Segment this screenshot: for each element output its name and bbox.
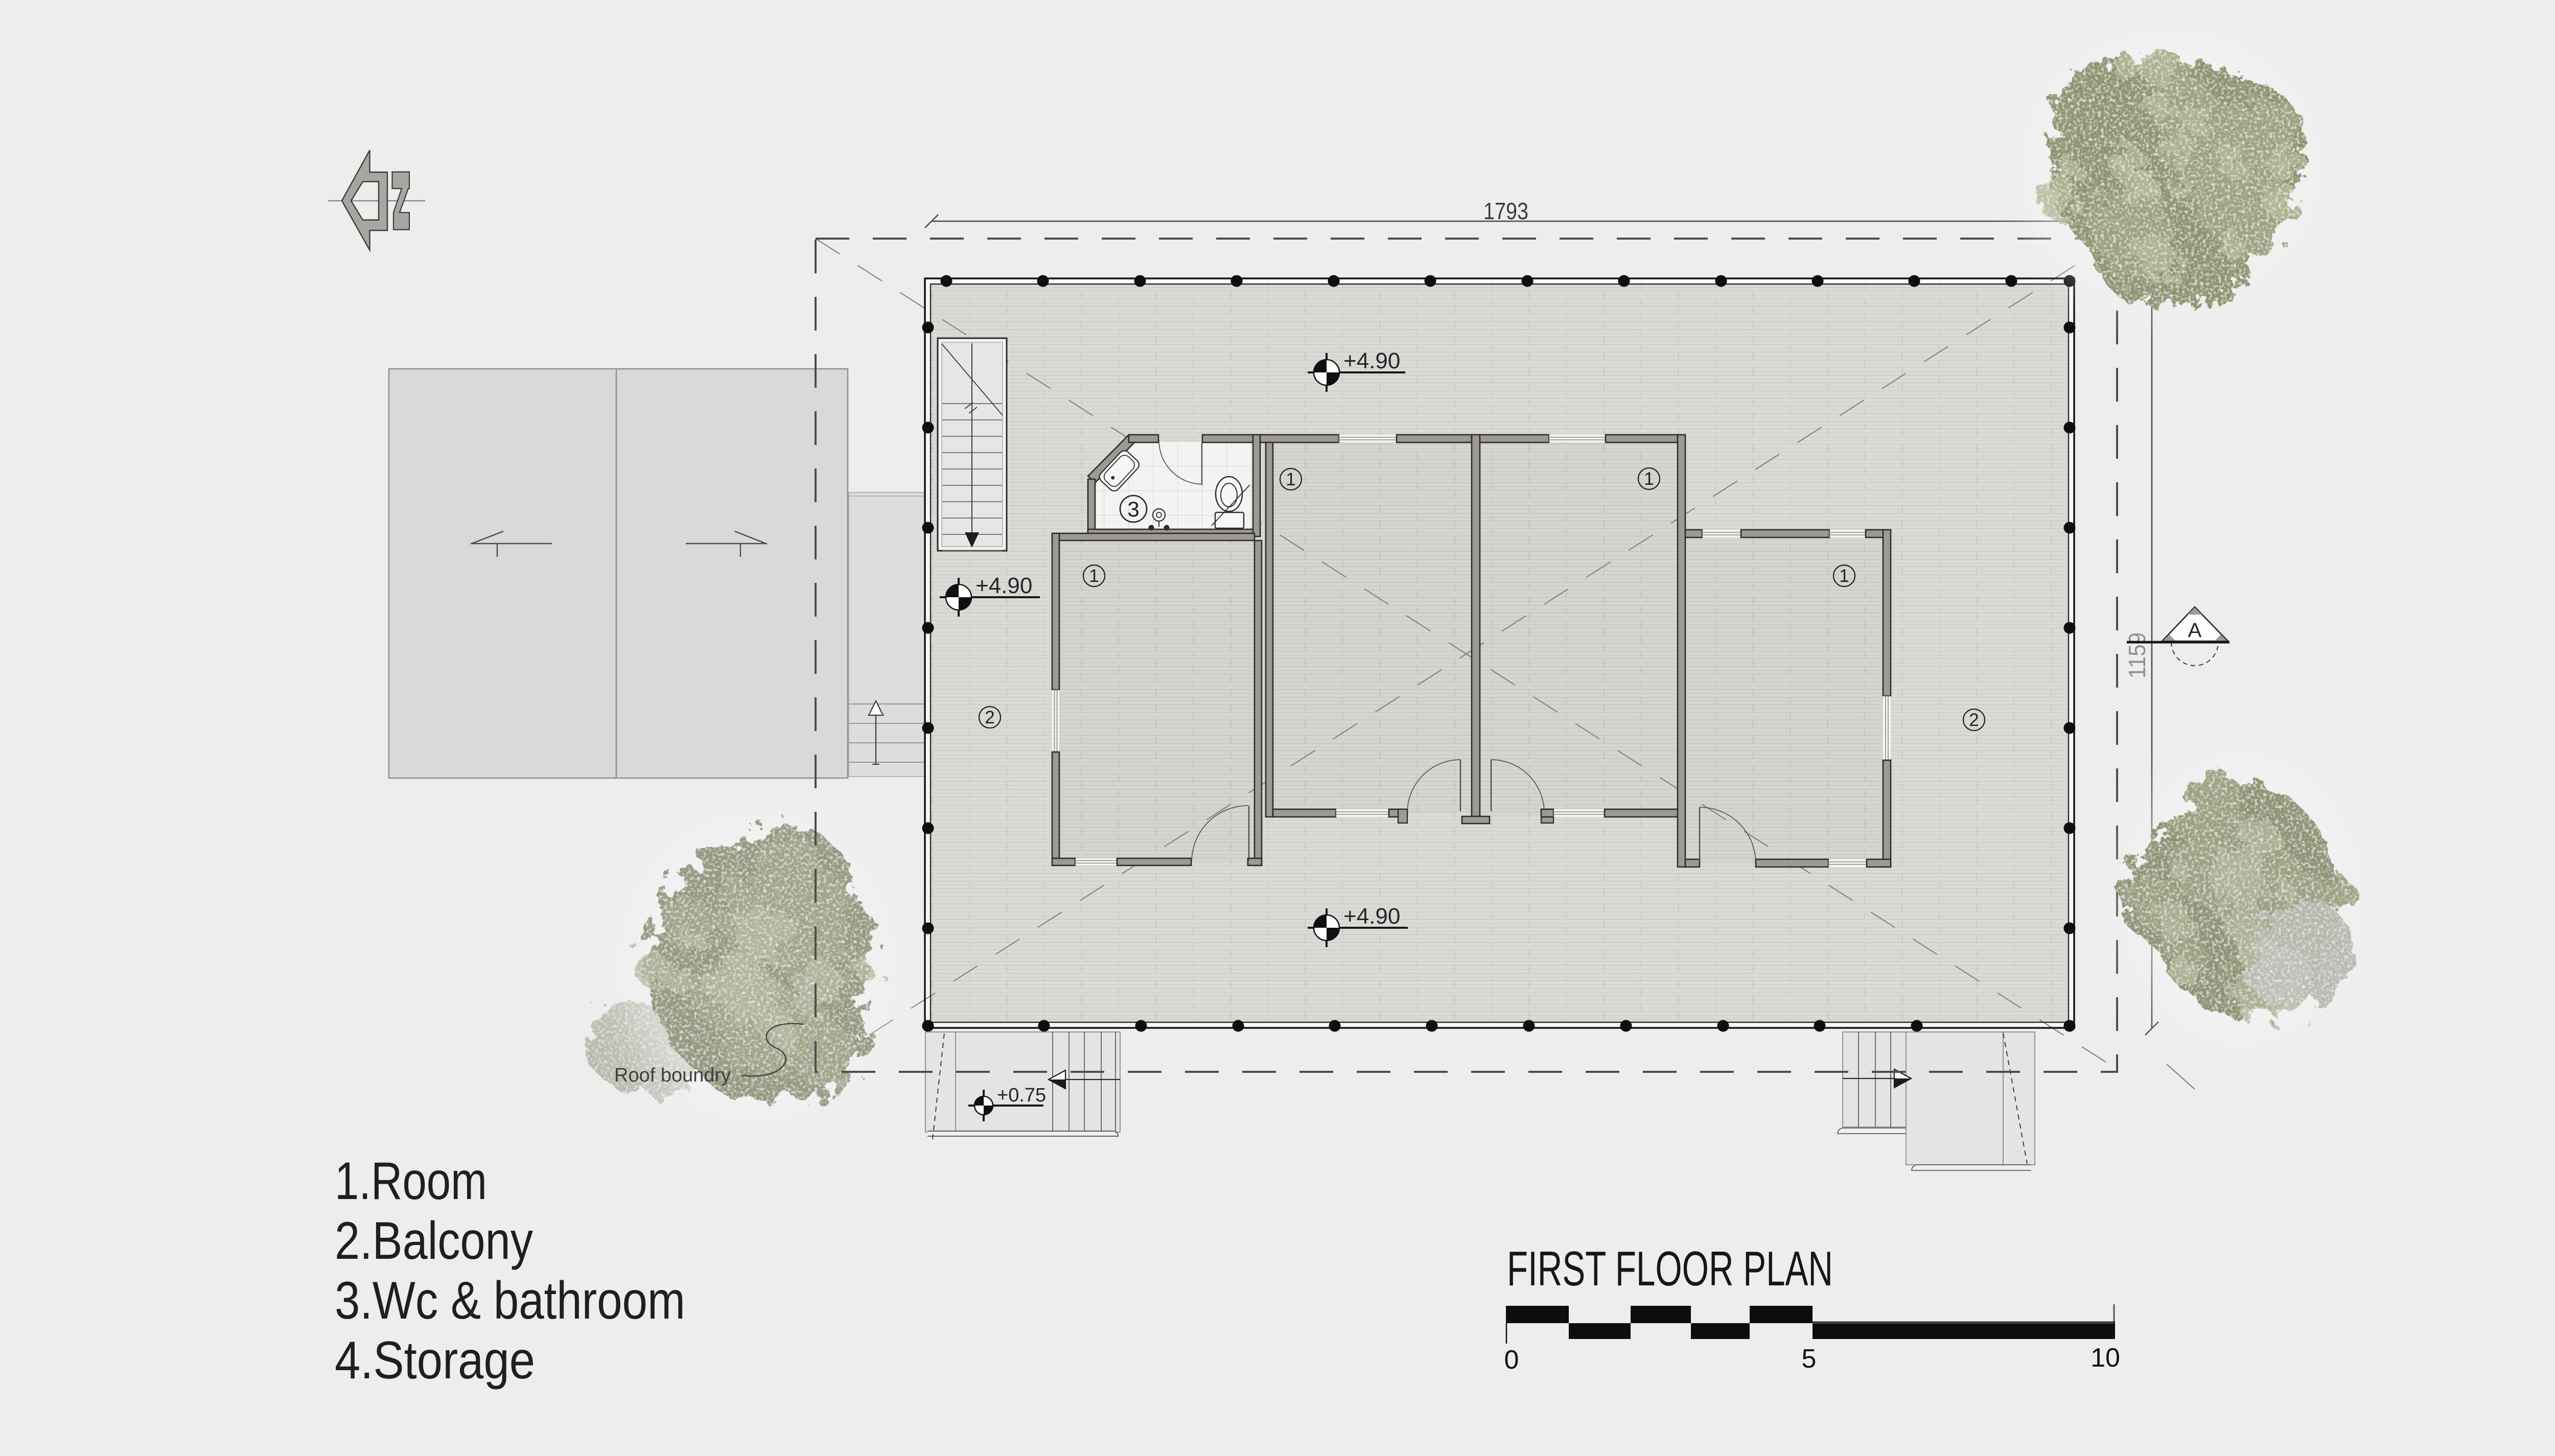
svg-text:2: 2 [985,708,994,727]
svg-text:+4.90: +4.90 [1343,904,1400,929]
svg-text:4.Storage: 4.Storage [335,1331,535,1390]
svg-text:FIRST FLOOR PLAN: FIRST FLOOR PLAN [1507,1241,1833,1296]
svg-text:5: 5 [1802,1344,1817,1374]
svg-text:0: 0 [1504,1345,1519,1375]
svg-text:10: 10 [2091,1343,2120,1373]
svg-text:2.Balcony: 2.Balcony [335,1211,533,1271]
svg-text:2: 2 [1969,710,1979,730]
svg-text:A: A [2188,619,2202,642]
svg-text:+4.90: +4.90 [1343,348,1400,373]
svg-text:3.Wc & bathroom: 3.Wc & bathroom [335,1271,685,1330]
svg-text:1: 1 [1286,469,1295,489]
svg-text:+0.75: +0.75 [997,1085,1046,1106]
svg-text:+4.90: +4.90 [975,573,1032,598]
svg-text:1793: 1793 [1483,198,1528,224]
svg-text:3: 3 [1127,497,1139,521]
svg-text:1159: 1159 [2124,632,2150,678]
svg-text:1: 1 [1644,469,1654,489]
svg-text:1.Room: 1.Room [335,1152,487,1211]
svg-text:Roof boundry: Roof boundry [614,1065,731,1086]
svg-text:1: 1 [1839,566,1849,586]
svg-text:1: 1 [1089,566,1099,586]
